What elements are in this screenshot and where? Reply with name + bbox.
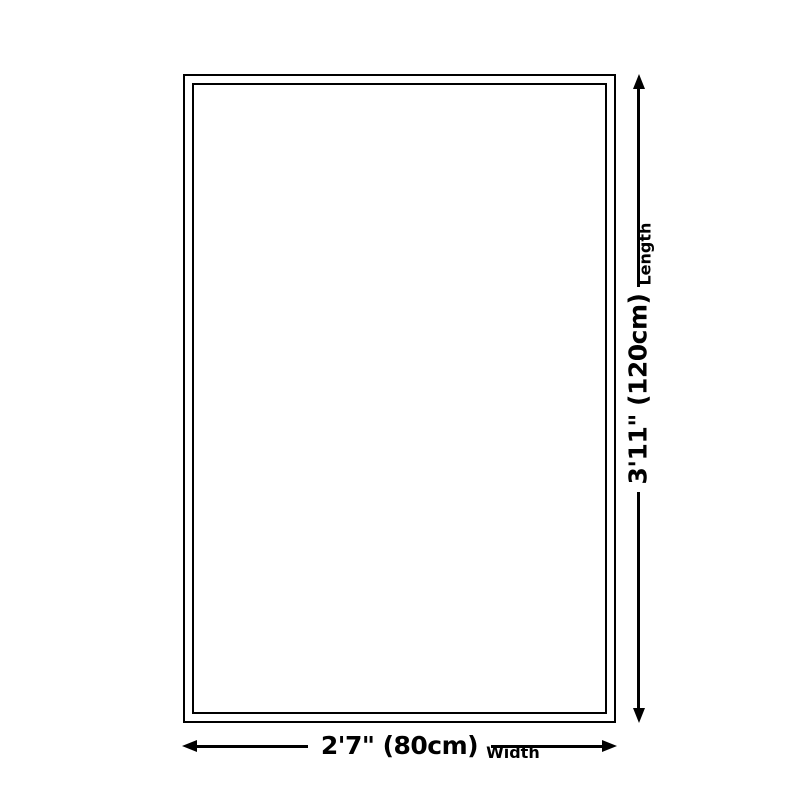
item-outline-inner bbox=[192, 83, 607, 714]
length-value: 3'11" (120cm) bbox=[623, 294, 652, 485]
arrow-up-icon bbox=[633, 74, 645, 89]
width-value: 2'7" (80cm) bbox=[321, 731, 478, 760]
length-axis-label: Length bbox=[636, 223, 654, 286]
width-dimension-label: 2'7" (80cm) Width bbox=[321, 732, 478, 761]
arrow-left-icon bbox=[182, 740, 197, 752]
width-dimension: 2'7" (80cm) Width bbox=[182, 728, 617, 764]
width-dimension-line-left bbox=[197, 745, 308, 748]
arrow-down-icon bbox=[633, 708, 645, 723]
width-axis-label: Width bbox=[486, 744, 540, 762]
length-label-area: 3'11" (120cm) Length bbox=[630, 287, 647, 492]
length-dimension: 3'11" (120cm) Length bbox=[630, 74, 647, 723]
size-diagram: 3'11" (120cm) Length 2'7" (80cm) Width bbox=[0, 0, 800, 800]
arrow-right-icon bbox=[602, 740, 617, 752]
length-dimension-label: 3'11" (120cm) Length bbox=[624, 294, 653, 485]
length-dimension-line-bottom bbox=[637, 492, 640, 708]
item-outline-outer bbox=[183, 74, 616, 723]
